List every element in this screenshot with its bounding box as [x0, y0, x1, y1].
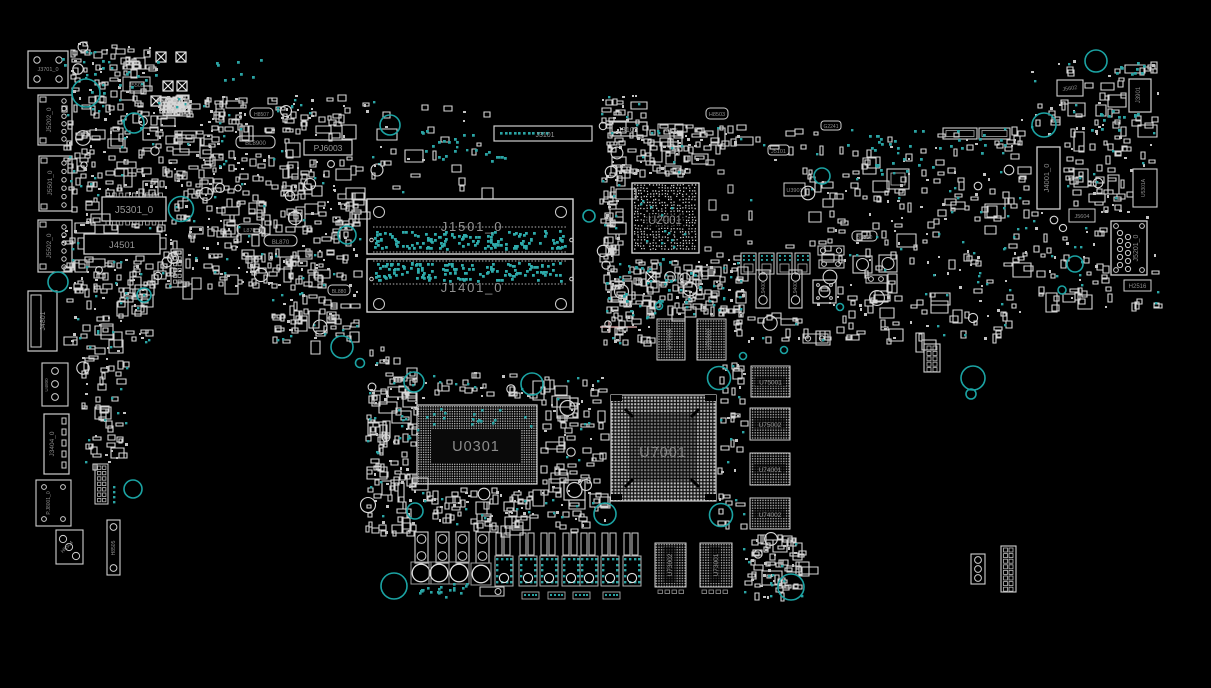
svg-text:PJ6003: PJ6003 — [314, 143, 343, 153]
svg-text:J1401_0: J1401_0 — [441, 280, 503, 295]
svg-text:L9400: L9400 — [761, 282, 767, 296]
svg-text:J5202_0: J5202_0 — [46, 107, 53, 132]
svg-text:L9400: L9400 — [793, 282, 799, 296]
svg-text:J1501_0: J1501_0 — [441, 219, 503, 234]
svg-text:J4501: J4501 — [109, 240, 135, 251]
svg-text:U0301: U0301 — [452, 439, 500, 455]
svg-text:J5502_0: J5502_0 — [46, 233, 53, 258]
svg-text:U2001: U2001 — [648, 215, 682, 227]
svg-text:U4800: U4800 — [44, 378, 49, 392]
svg-text:P.J8001_0: P.J8001_0 — [46, 491, 52, 514]
svg-text:J5604: J5604 — [1075, 214, 1090, 220]
svg-text:J3901: J3901 — [1136, 86, 1142, 103]
svg-text:J4001_0: J4001_0 — [1042, 164, 1051, 193]
svg-text:U76001: U76001 — [667, 328, 673, 350]
svg-text:BL8900: BL8900 — [245, 141, 266, 147]
svg-text:U74001: U74001 — [759, 467, 782, 474]
svg-text:U74002: U74002 — [759, 512, 782, 519]
svg-text:BL870: BL870 — [272, 240, 290, 246]
svg-text:U5301A: U5301A — [1141, 178, 1147, 197]
svg-text:J4801: J4801 — [40, 311, 47, 330]
svg-text:BL880: BL880 — [332, 289, 347, 295]
svg-text:U75002: U75002 — [759, 422, 782, 429]
svg-text:H8503: H8503 — [709, 112, 725, 118]
svg-text:J3701_0: J3701_0 — [37, 67, 58, 73]
svg-text:J5201_0: J5201_0 — [1133, 234, 1140, 261]
svg-text:U76002: U76002 — [707, 328, 713, 350]
svg-text:U7001: U7001 — [639, 445, 687, 461]
svg-text:U3901: U3901 — [786, 188, 802, 194]
svg-text:J3101: J3101 — [535, 132, 554, 139]
svg-text:J5301_0: J5301_0 — [115, 205, 154, 216]
svg-text:H8505: H8505 — [111, 540, 117, 555]
svg-text:J5501_0: J5501_0 — [47, 170, 54, 195]
svg-text:U73002: U73002 — [667, 553, 674, 576]
svg-text:H8507: H8507 — [254, 112, 269, 118]
svg-text:G2241: G2241 — [823, 124, 838, 130]
svg-text:U75001: U75001 — [759, 380, 782, 387]
svg-text:J5101: J5101 — [771, 149, 786, 155]
svg-text:J3404_0: J3404_0 — [49, 431, 56, 456]
svg-text:U73001: U73001 — [713, 553, 720, 576]
svg-text:H2516: H2516 — [1129, 284, 1147, 290]
